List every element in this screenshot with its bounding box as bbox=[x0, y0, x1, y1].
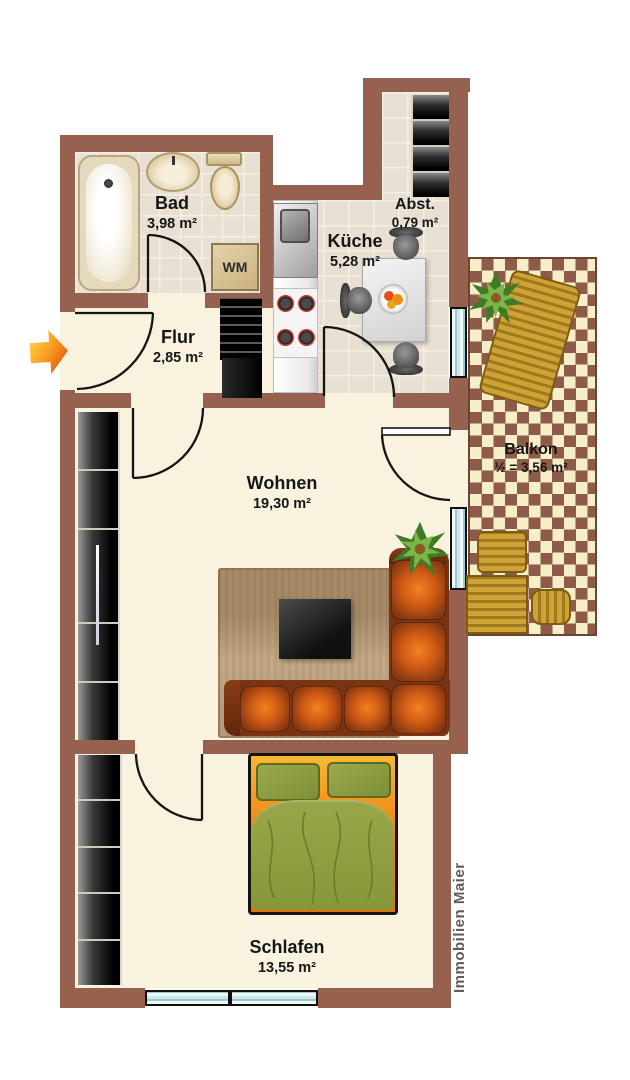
room-area: ½ = 3,56 m² bbox=[476, 460, 586, 477]
balcony-door bbox=[382, 428, 450, 435]
room-label-abst: Abst. 0,79 m² bbox=[377, 195, 453, 232]
room-name: Küche bbox=[300, 230, 410, 253]
room-label-wohnen: Wohnen 19,30 m² bbox=[222, 472, 342, 513]
blanket-fold bbox=[368, 820, 372, 898]
room-area: 0,79 m² bbox=[377, 215, 453, 232]
plant-icon bbox=[469, 272, 524, 324]
floor-plan: WM bbox=[0, 0, 630, 1080]
room-area: 13,55 m² bbox=[227, 959, 347, 977]
room-name: Bad bbox=[120, 192, 224, 215]
room-label-bad: Bad 3,98 m² bbox=[120, 192, 224, 233]
room-label-schlafen: Schlafen 13,55 m² bbox=[227, 936, 347, 977]
blanket-fold bbox=[268, 820, 274, 898]
room-label-flur: Flur 2,85 m² bbox=[128, 326, 228, 367]
room-name: Flur bbox=[128, 326, 228, 349]
room-area: 3,98 m² bbox=[120, 215, 224, 233]
room-name: Balkon bbox=[476, 440, 586, 460]
room-area: 5,28 m² bbox=[300, 253, 410, 271]
room-area: 19,30 m² bbox=[222, 495, 342, 513]
room-label-balkon: Balkon ½ = 3,56 m² bbox=[476, 440, 586, 477]
room-name: Wohnen bbox=[222, 472, 342, 495]
room-name: Schlafen bbox=[227, 936, 347, 959]
plant-icon bbox=[392, 522, 450, 577]
branding-text: Immobilien Maier bbox=[451, 853, 468, 993]
blanket-fold bbox=[303, 812, 315, 905]
blanket-fold bbox=[334, 812, 340, 903]
room-area: 2,85 m² bbox=[128, 349, 228, 367]
door-swings bbox=[0, 0, 630, 1080]
room-name: Abst. bbox=[377, 195, 453, 215]
room-label-kueche: Küche 5,28 m² bbox=[300, 230, 410, 271]
